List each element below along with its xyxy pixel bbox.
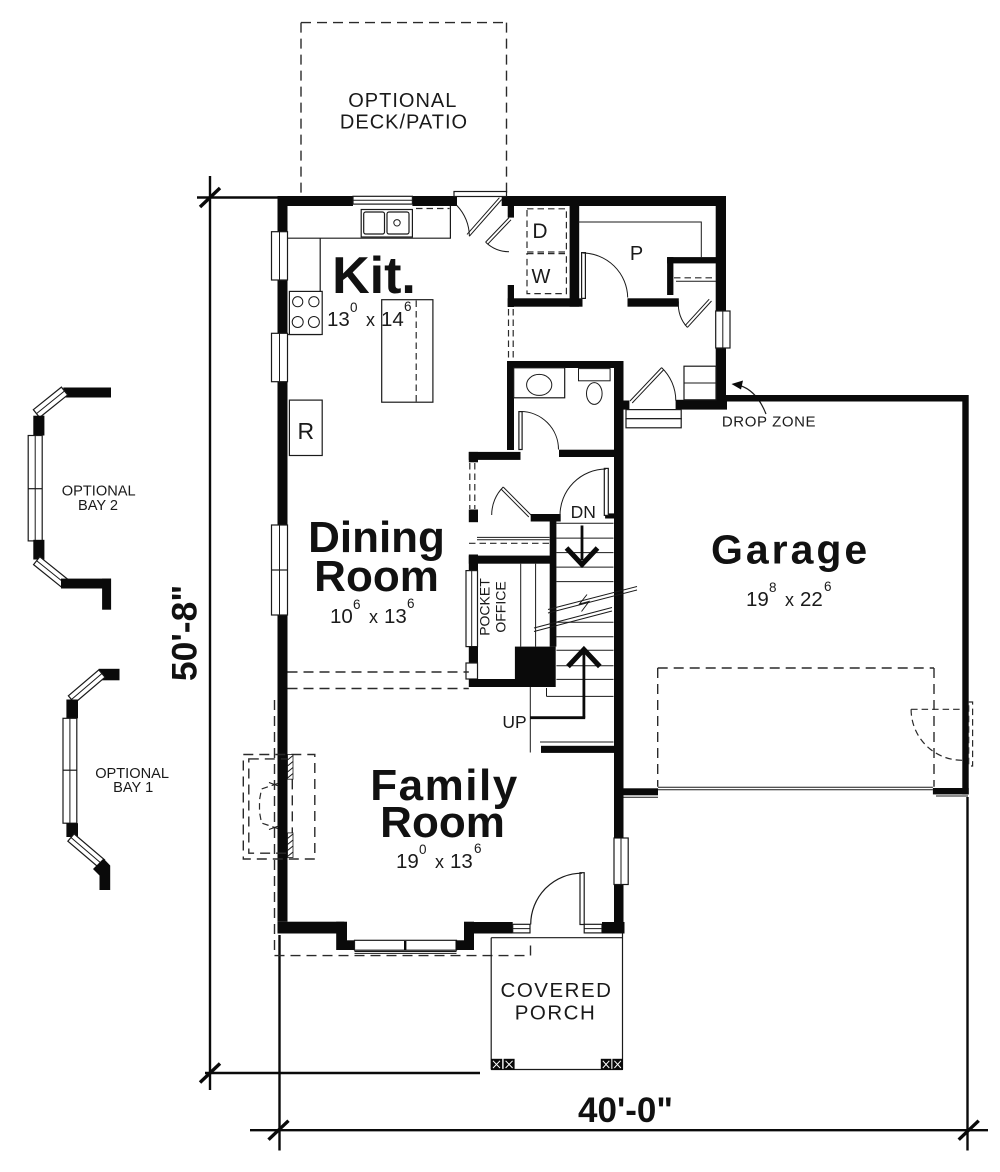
svg-text:13: 13: [327, 308, 350, 331]
svg-text:10: 10: [330, 605, 353, 628]
svg-text:COVERED: COVERED: [501, 979, 613, 1002]
svg-text:14: 14: [381, 308, 404, 331]
svg-text:x: x: [785, 590, 794, 610]
svg-text:22: 22: [800, 588, 823, 611]
svg-text:0: 0: [350, 300, 358, 315]
svg-text:13: 13: [450, 850, 473, 873]
svg-text:40'-0": 40'-0": [578, 1091, 673, 1130]
svg-text:x: x: [366, 310, 375, 330]
svg-text:6: 6: [404, 299, 412, 314]
svg-text:x: x: [369, 607, 378, 627]
svg-text:19: 19: [746, 588, 769, 611]
svg-text:8: 8: [769, 580, 777, 595]
svg-text:Kit.: Kit.: [332, 247, 416, 305]
svg-text:Garage: Garage: [711, 527, 870, 573]
svg-text:x: x: [435, 852, 444, 872]
svg-text:PORCH: PORCH: [515, 1002, 597, 1025]
svg-text:6: 6: [474, 841, 482, 856]
svg-text:W: W: [532, 266, 551, 288]
svg-text:DECK/PATIO: DECK/PATIO: [340, 112, 468, 134]
svg-text:DN: DN: [571, 502, 596, 522]
svg-text:BAY 1: BAY 1: [113, 780, 153, 796]
svg-text:OPTIONAL: OPTIONAL: [348, 90, 457, 112]
svg-text:R: R: [297, 418, 314, 444]
svg-text:6: 6: [824, 579, 832, 594]
svg-text:6: 6: [353, 597, 361, 612]
svg-text:Room: Room: [380, 798, 505, 847]
svg-text:BAY 2: BAY 2: [78, 498, 118, 514]
svg-text:POCKET: POCKET: [477, 578, 493, 636]
svg-text:P: P: [630, 243, 643, 265]
svg-text:19: 19: [396, 850, 419, 873]
svg-text:0: 0: [419, 842, 427, 857]
svg-text:DROP ZONE: DROP ZONE: [722, 414, 816, 431]
svg-text:Room: Room: [314, 552, 439, 601]
svg-text:6: 6: [407, 596, 415, 611]
svg-text:D: D: [532, 220, 547, 243]
svg-text:50'-8": 50'-8": [164, 585, 204, 681]
svg-text:13: 13: [384, 605, 407, 628]
svg-text:UP: UP: [502, 712, 526, 732]
svg-text:OFFICE: OFFICE: [493, 581, 509, 632]
